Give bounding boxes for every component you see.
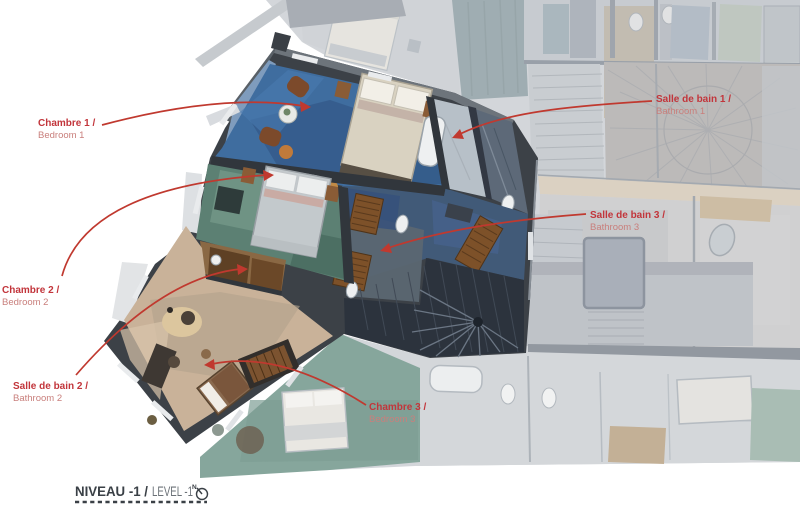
svg-text:N: N — [192, 484, 197, 491]
svg-text:Bedroom 2: Bedroom 2 — [2, 297, 48, 308]
svg-text:Salle de bain 2 /: Salle de bain 2 / — [13, 381, 88, 392]
svg-text:NIVEAU -1 /: NIVEAU -1 / — [75, 484, 148, 499]
svg-text:Chambre 3 /: Chambre 3 / — [369, 402, 426, 413]
svg-text:LEVEL -1: LEVEL -1 — [152, 484, 193, 499]
svg-text:Salle de bain 1 /: Salle de bain 1 / — [656, 94, 731, 105]
svg-text:Chambre 2 /: Chambre 2 / — [2, 285, 59, 296]
svg-text:Chambre 1 /: Chambre 1 / — [38, 118, 95, 129]
svg-text:Bedroom 1: Bedroom 1 — [38, 130, 84, 141]
svg-text:Bathroom 3: Bathroom 3 — [590, 222, 639, 233]
svg-text:Bathroom 1: Bathroom 1 — [656, 106, 705, 117]
svg-text:Salle de bain 3 /: Salle de bain 3 / — [590, 210, 665, 221]
svg-text:Bedroom 3: Bedroom 3 — [369, 414, 415, 425]
svg-text:Bathroom 2: Bathroom 2 — [13, 393, 62, 404]
